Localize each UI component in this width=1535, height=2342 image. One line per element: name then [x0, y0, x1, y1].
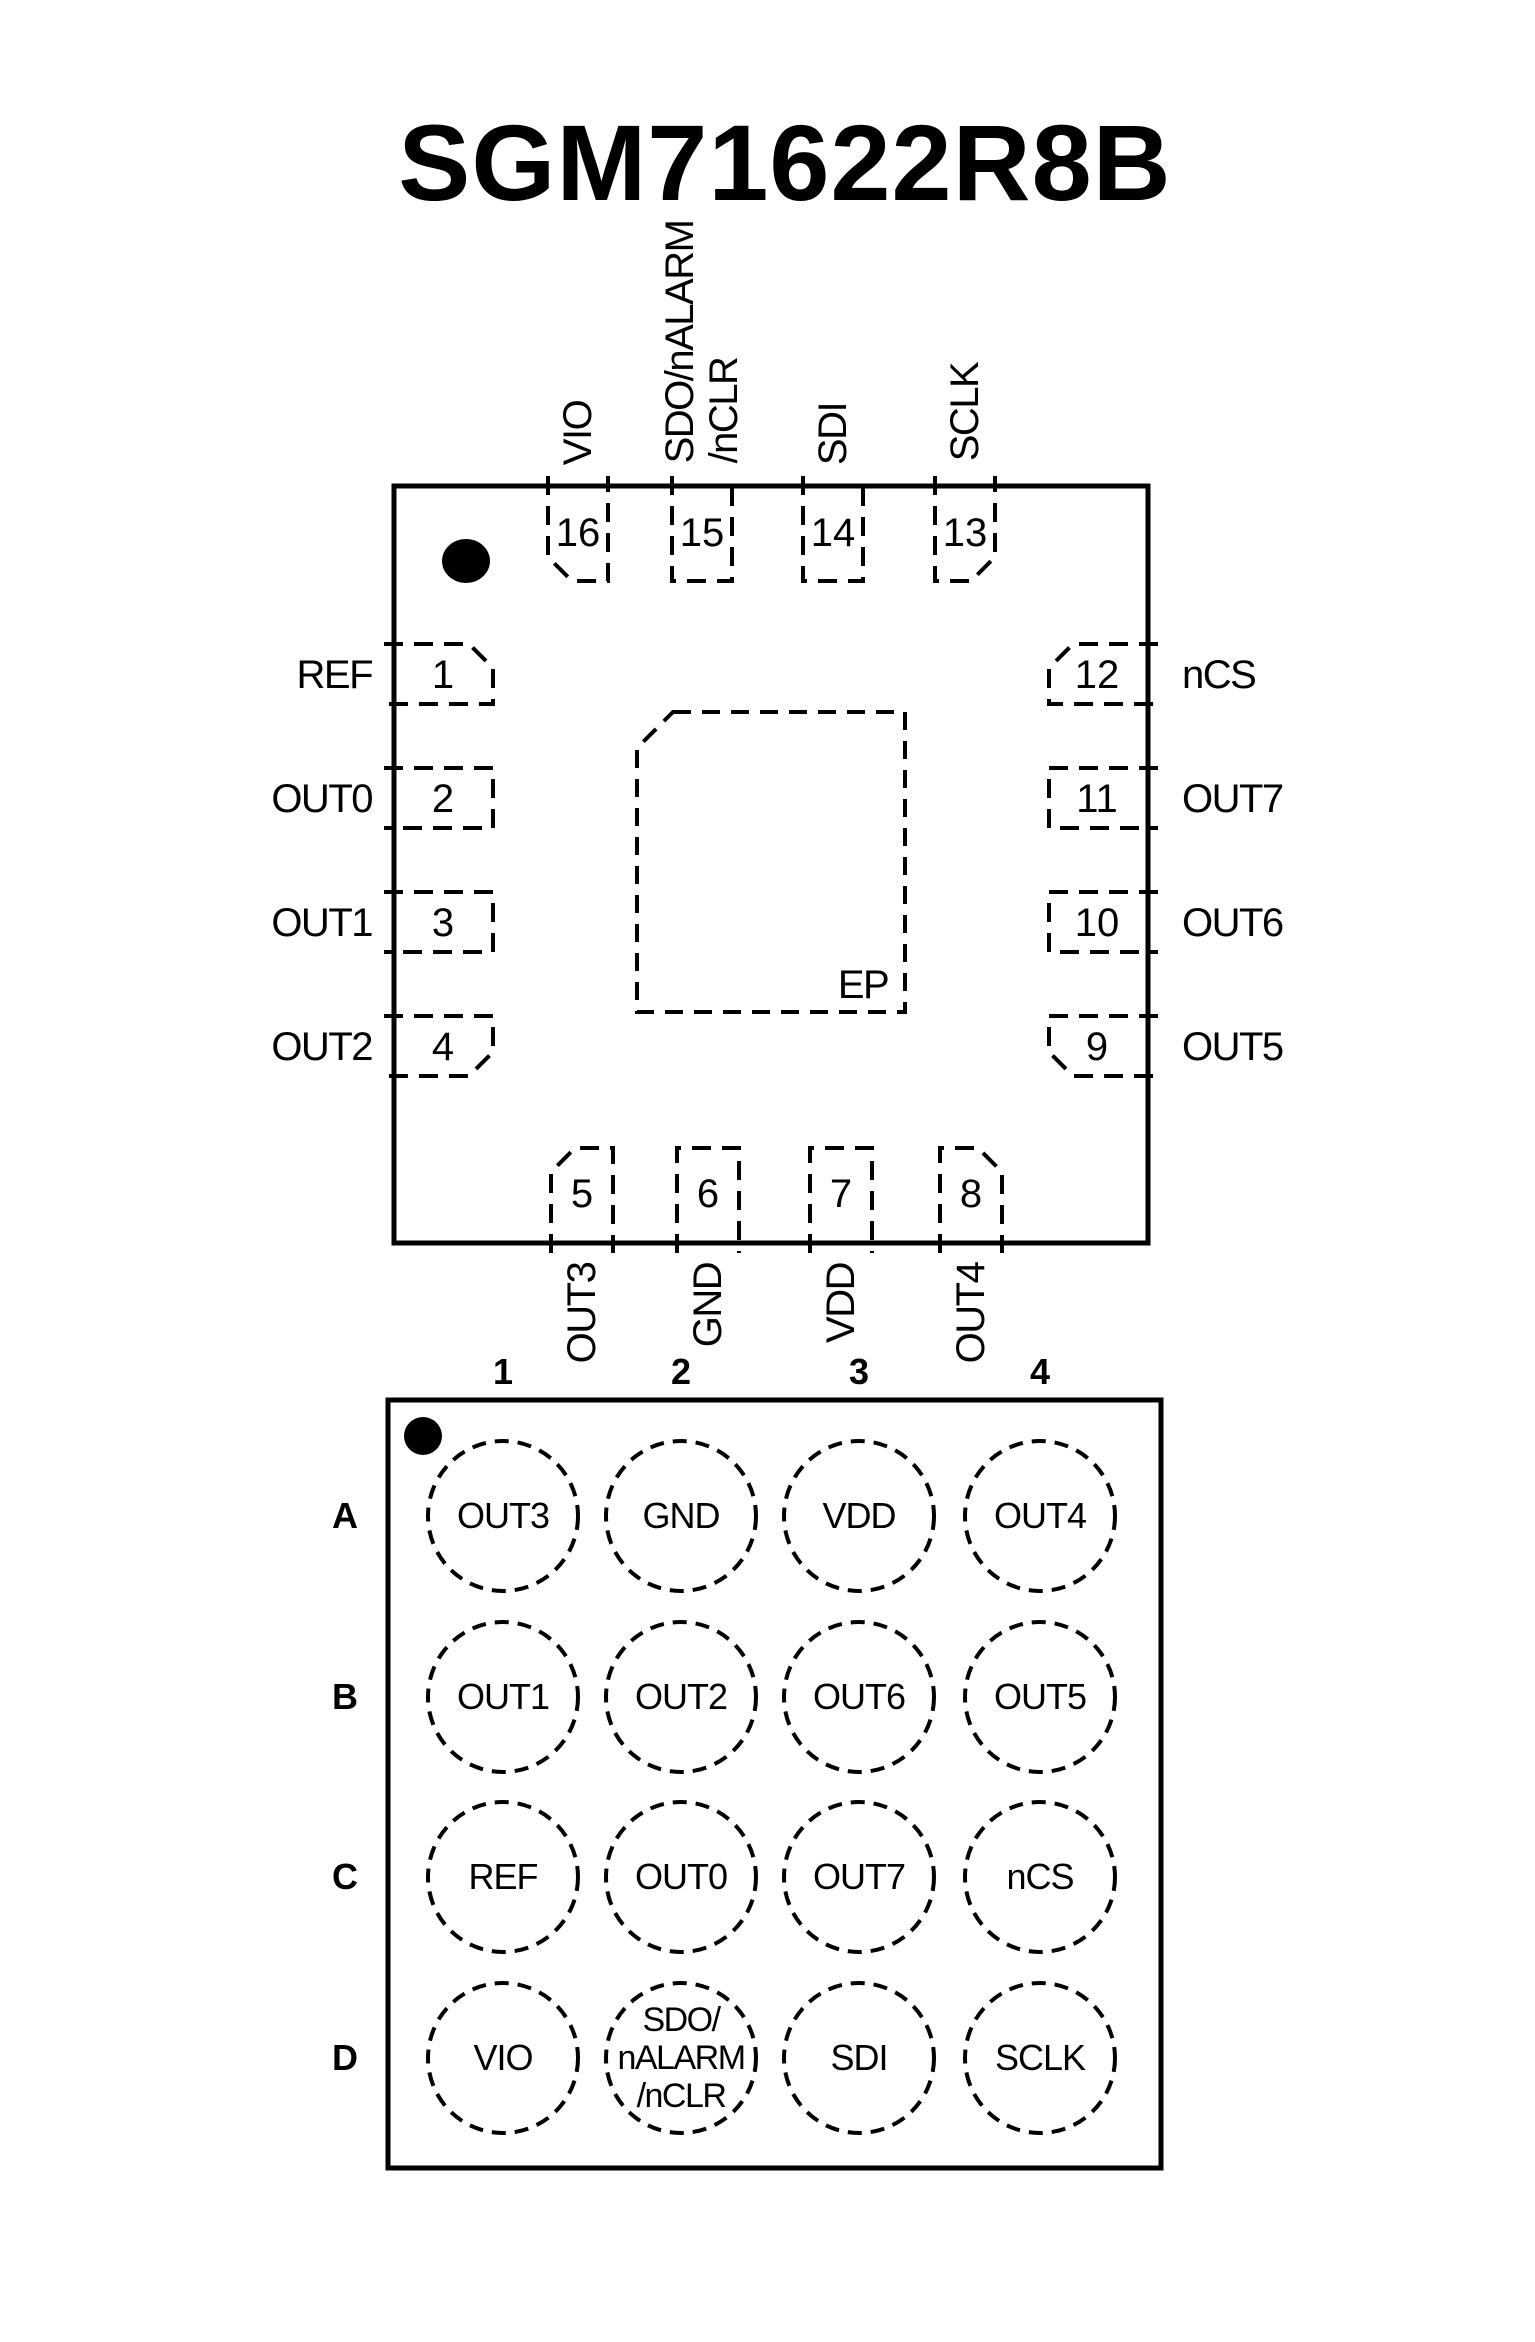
qfn-pin-number-1: 1	[432, 654, 454, 696]
qfn-signal-out6: OUT6	[1182, 902, 1283, 944]
qfn-pin-number-7: 7	[830, 1173, 852, 1215]
qfn-diagram	[384, 476, 1158, 1253]
qfn-pin-number-12: 12	[1075, 654, 1120, 696]
bga-col-header-4: 4	[1030, 1353, 1050, 1391]
qfn-pin1-dot	[442, 539, 490, 583]
qfn-pin-number-11: 11	[1076, 778, 1118, 820]
qfn-pin-number-8: 8	[960, 1173, 982, 1215]
qfn-signal-ncs: nCS	[1182, 654, 1255, 696]
bga-ball-label-b3: OUT6	[813, 1678, 905, 1716]
bga-row-header-b: B	[332, 1678, 358, 1716]
qfn-pin-number-9: 9	[1086, 1026, 1108, 1068]
bga-ball-label-c1: REF	[469, 1858, 538, 1896]
pinout-figure: SGM71622R8B	[0, 0, 1535, 2342]
bga-ball-label-a2: GND	[643, 1497, 720, 1535]
qfn-package-outline	[394, 486, 1148, 1243]
bga-ball-label-b2: OUT2	[635, 1678, 727, 1716]
qfn-pin-number-13: 13	[943, 512, 988, 554]
qfn-signal-gnd: GND	[686, 1263, 730, 1347]
bga-col-header-3: 3	[849, 1353, 869, 1391]
bga-row-header-a: A	[332, 1497, 358, 1535]
qfn-pin-number-3: 3	[432, 902, 454, 944]
qfn-pin-number-15: 15	[680, 512, 725, 554]
bga-ball-label-b4: OUT5	[994, 1678, 1086, 1716]
qfn-signal-sdo-nalarm: SDO/nALARM /nCLR	[658, 221, 746, 464]
qfn-signal-out0: OUT0	[122, 778, 372, 820]
qfn-pin-number-6: 6	[697, 1173, 719, 1215]
diagram-graphics	[0, 0, 1535, 2342]
qfn-pin-number-10: 10	[1075, 902, 1120, 944]
qfn-pin-number-14: 14	[811, 512, 856, 554]
bga-ball-label-b1: OUT1	[457, 1678, 549, 1716]
qfn-signal-ref: REF	[122, 654, 372, 696]
qfn-ep-label: EP	[838, 964, 888, 1006]
bga-pin1-dot	[404, 1417, 442, 1455]
bga-ball-label-d4: SCLK	[995, 2039, 1085, 2077]
qfn-pin-number-16: 16	[556, 512, 601, 554]
qfn-signal-out5: OUT5	[1182, 1026, 1283, 1068]
qfn-signal-out4: OUT4	[949, 1263, 993, 1364]
bga-row-header-c: C	[332, 1858, 358, 1896]
bga-col-header-2: 2	[671, 1353, 691, 1391]
bga-ball-label-a1: OUT3	[457, 1497, 549, 1535]
bga-ball-label-c4: nCS	[1006, 1858, 1073, 1896]
qfn-signal-vio: VIO	[556, 401, 600, 465]
bga-ball-label-d3: SDI	[830, 2039, 887, 2077]
qfn-signal-out2: OUT2	[122, 1026, 372, 1068]
qfn-signal-out3: OUT3	[560, 1263, 604, 1364]
bga-ball-label-d2: SDO/ nALARM /nCLR	[617, 2001, 744, 2115]
qfn-signal-vdd: VDD	[819, 1263, 863, 1343]
qfn-pin-number-4: 4	[432, 1026, 454, 1068]
bga-ball-label-c3: OUT7	[813, 1858, 905, 1896]
qfn-pin-number-2: 2	[432, 778, 454, 820]
bga-ball-label-a4: OUT4	[994, 1497, 1086, 1535]
bga-ball-label-a3: VDD	[822, 1497, 895, 1535]
qfn-pin-number-5: 5	[571, 1173, 593, 1215]
bga-row-header-d: D	[332, 2039, 358, 2077]
bga-ball-label-d1: VIO	[473, 2039, 532, 2077]
qfn-signal-out1: OUT1	[122, 902, 372, 944]
qfn-signal-sclk: SCLK	[943, 363, 987, 462]
bga-ball-label-c2: OUT0	[635, 1858, 727, 1896]
qfn-signal-sdi: SDI	[811, 403, 855, 465]
bga-col-header-1: 1	[493, 1353, 513, 1391]
qfn-signal-out7: OUT7	[1182, 778, 1283, 820]
